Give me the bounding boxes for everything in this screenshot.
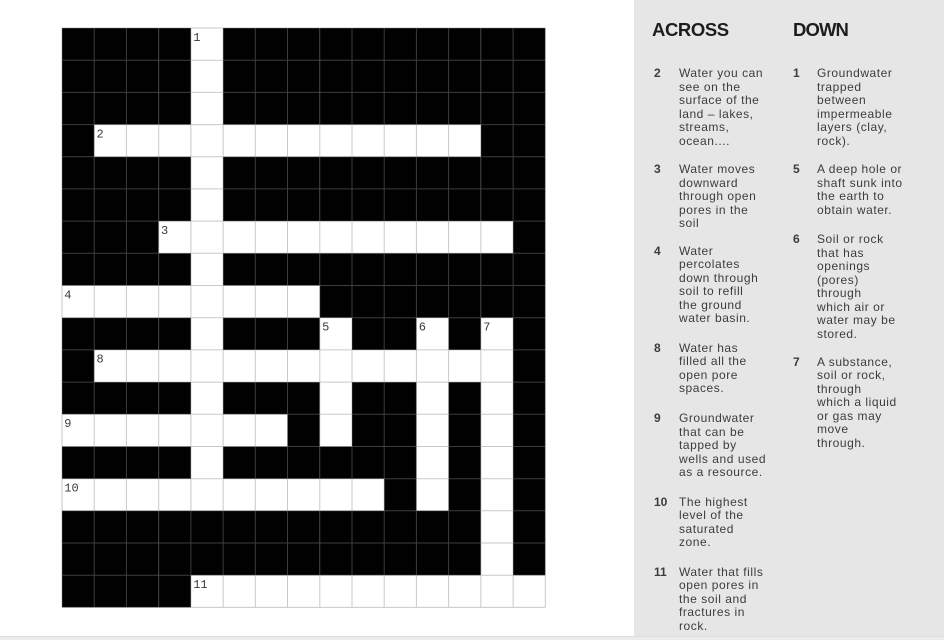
svg-text:9: 9 — [64, 417, 71, 431]
svg-text:6: 6 — [419, 321, 426, 335]
svg-text:10: 10 — [64, 482, 78, 496]
svg-text:2: 2 — [97, 127, 104, 141]
svg-text:4: 4 — [64, 288, 71, 302]
svg-text:11: 11 — [193, 578, 207, 592]
svg-text:7: 7 — [483, 321, 490, 335]
svg-text:1: 1 — [193, 31, 200, 45]
svg-text:5: 5 — [322, 321, 329, 335]
svg-text:3: 3 — [161, 224, 168, 238]
svg-text:8: 8 — [97, 353, 104, 367]
